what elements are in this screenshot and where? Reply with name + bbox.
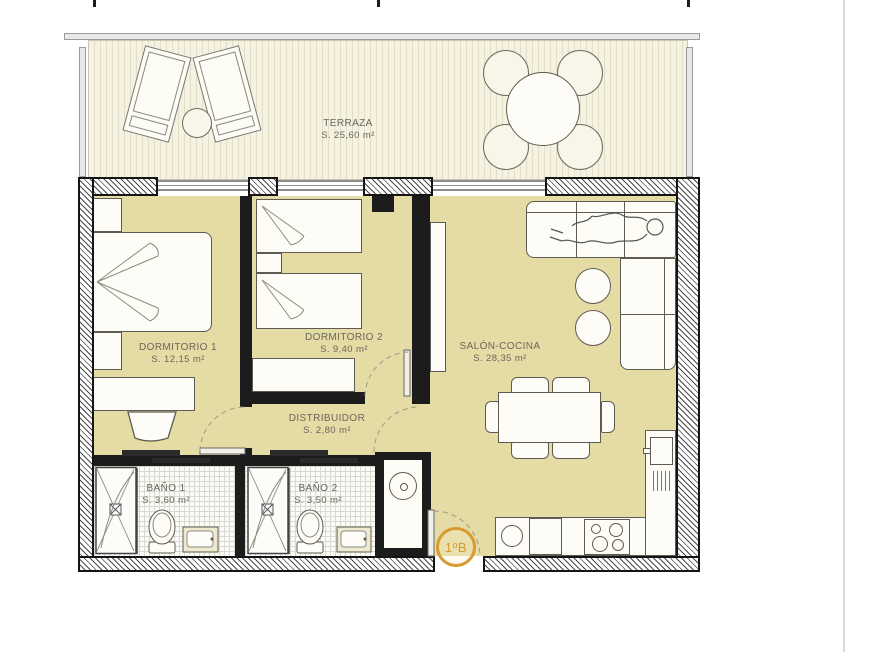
- unit-badge-text: 1ºB: [445, 540, 467, 555]
- linework-overlay: [0, 0, 870, 652]
- bedspread-folds: [262, 280, 304, 319]
- bano2-label: BAÑO 2 S. 3,50 m²: [294, 483, 342, 507]
- door-leaf-dorm2: [404, 350, 410, 396]
- person-figure: [550, 213, 647, 243]
- floor-plan: TERRAZA S. 25,60 m² DORMITORIO 1 S. 12,1…: [0, 0, 870, 652]
- door-leaf-dorm1: [200, 448, 245, 454]
- dormitorio2-label: DORMITORIO 2 S. 9,40 m²: [305, 332, 383, 356]
- door-arc-salon: [374, 407, 418, 452]
- door-arc-dorm2: [365, 352, 409, 396]
- person-head: [647, 219, 663, 235]
- door-leaf-entrance: [428, 510, 434, 556]
- bedspread-folds: [97, 243, 158, 321]
- door-arc-dorm1: [200, 407, 245, 451]
- unit-badge: 1ºB: [436, 527, 476, 567]
- distribuidor-label: DISTRIBUIDOR S. 2,80 m²: [289, 413, 365, 437]
- bedspread-folds: [262, 206, 304, 245]
- salon-label: SALÓN-COCINA S. 28,35 m²: [460, 341, 541, 365]
- desk-chair: [128, 412, 176, 441]
- bano1-label: BAÑO 1 S. 3,60 m²: [142, 483, 190, 507]
- terraza-label: TERRAZA S. 25,60 m²: [321, 118, 375, 142]
- dormitorio1-label: DORMITORIO 1 S. 12,15 m²: [139, 342, 217, 366]
- page-edge-line: [843, 0, 845, 652]
